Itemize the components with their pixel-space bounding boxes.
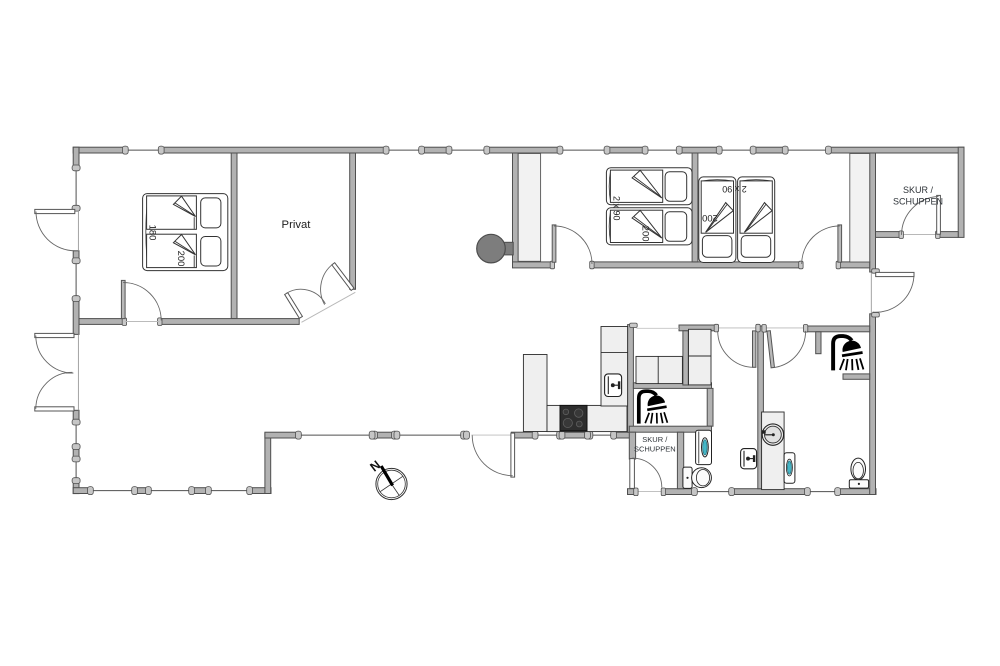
svg-text:200: 200 [175, 251, 186, 267]
svg-text:2 x 90: 2 x 90 [612, 196, 622, 221]
svg-text:200: 200 [702, 212, 718, 223]
svg-text:SCHUPPEN: SCHUPPEN [634, 445, 676, 454]
svg-text:Privat: Privat [282, 219, 312, 231]
svg-text:SKUR /: SKUR / [642, 435, 668, 444]
svg-text:2 x 90: 2 x 90 [722, 184, 747, 194]
svg-text:SKUR /: SKUR / [903, 185, 934, 195]
svg-text:180: 180 [146, 225, 157, 241]
svg-text:SCHUPPEN: SCHUPPEN [893, 196, 943, 206]
svg-text:200: 200 [639, 226, 650, 242]
